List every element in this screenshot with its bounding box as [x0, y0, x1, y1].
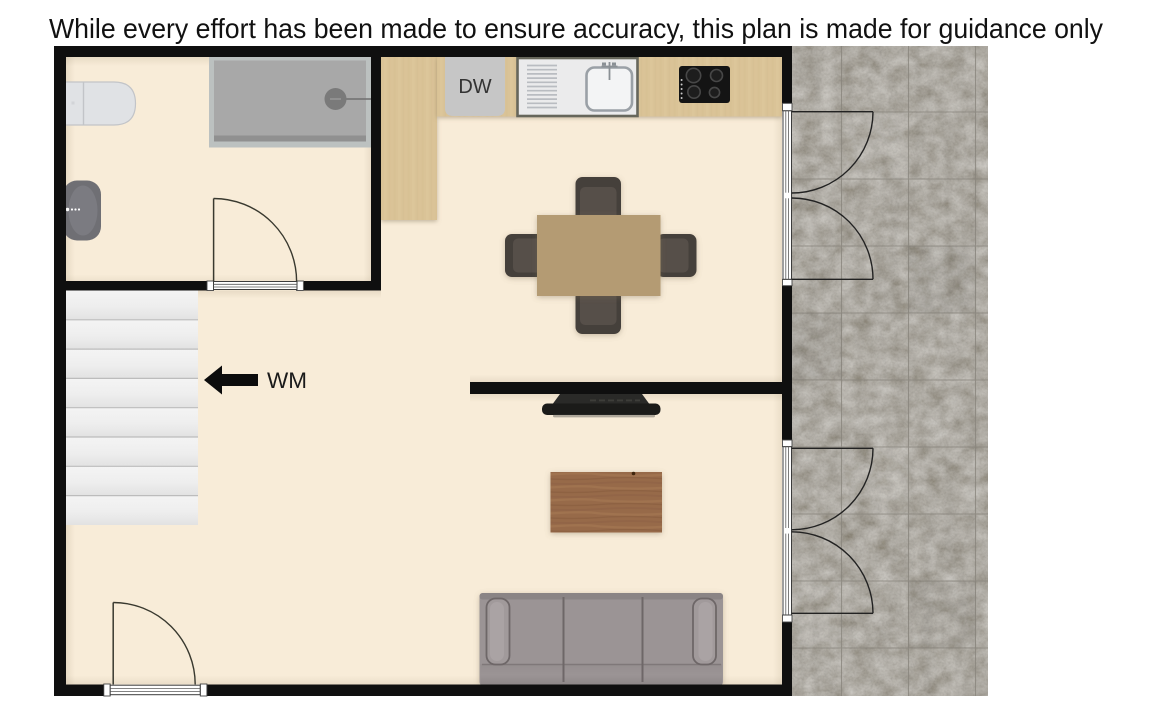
svg-text:While every effort has been ma: While every effort has been made to ensu… — [49, 13, 1103, 44]
svg-text:DW: DW — [458, 76, 491, 98]
svg-text:WM: WM — [267, 368, 307, 393]
